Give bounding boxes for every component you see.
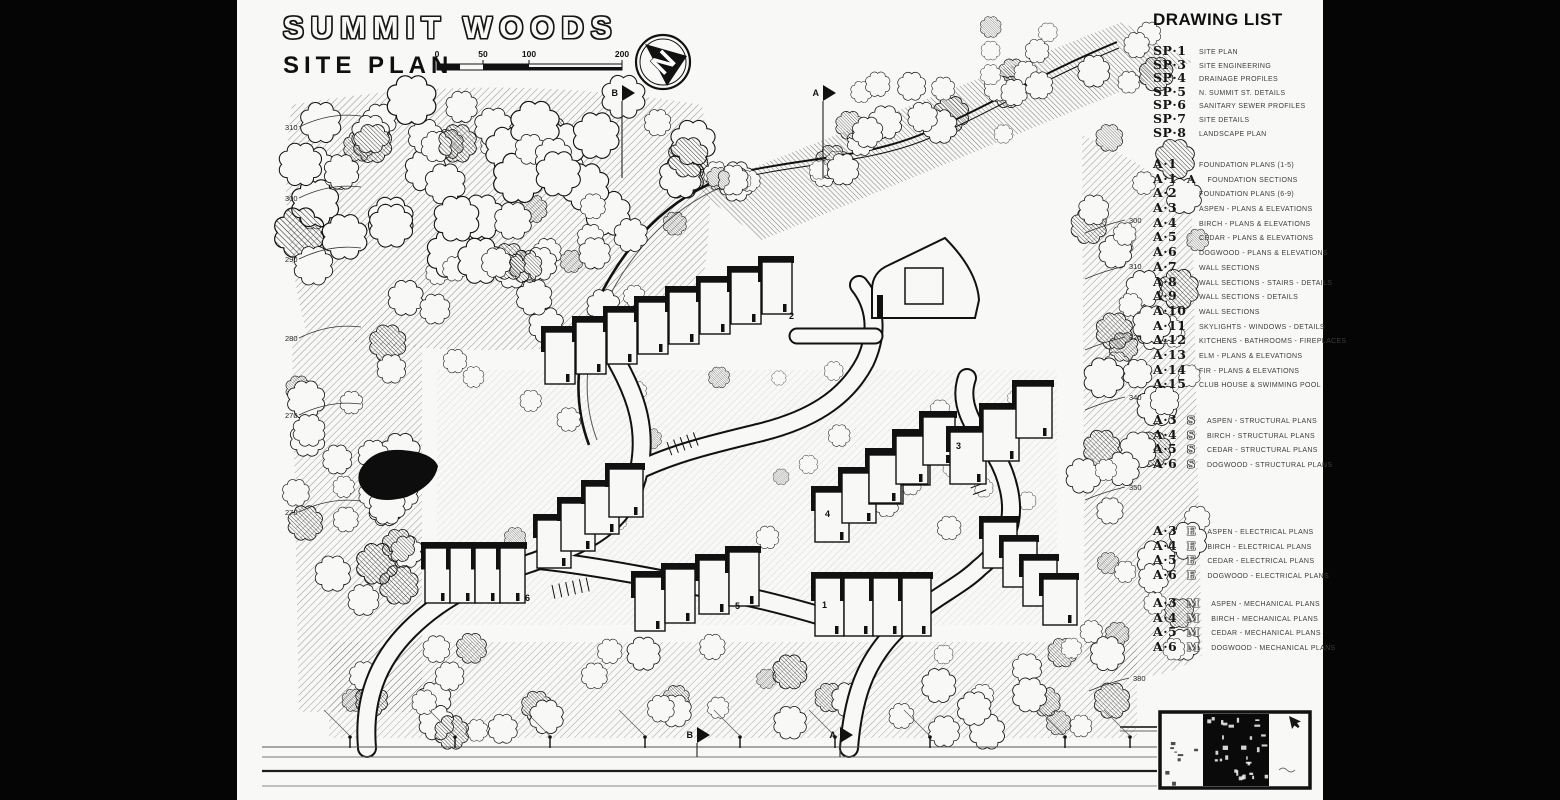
- marker-letter: A: [830, 730, 837, 740]
- building-unit: [902, 578, 931, 636]
- drawing-list-row: A·14FIR - PLANS & ELEVATIONS: [1153, 362, 1323, 377]
- right-letterbox: [1323, 0, 1560, 800]
- stamp-noise: [1225, 755, 1228, 759]
- unit-door: [441, 593, 445, 601]
- stamp-noise: [1222, 735, 1224, 739]
- unit-door: [1043, 428, 1047, 436]
- sheet-code-suffix: S: [1187, 429, 1195, 442]
- drawing-list-row: A·2FOUNDATION PLANS (6-9): [1153, 185, 1323, 200]
- sheet-code: A·4: [1153, 538, 1187, 553]
- sheet-code-suffix: M: [1187, 626, 1199, 639]
- marker-letter: A: [813, 88, 820, 98]
- sheet-code-suffix: M: [1187, 612, 1199, 625]
- sheet-title-text: KITCHENS - BATHROOMS - FIREPLACES: [1199, 338, 1347, 345]
- sheet-code: A·14: [1153, 362, 1187, 377]
- building-cluster: [695, 546, 761, 614]
- sheet-title-text: CLUB HOUSE & SWIMMING POOL: [1199, 382, 1321, 389]
- tree: [443, 349, 466, 372]
- sheet-title-text: SITE ENGINEERING: [1199, 63, 1271, 70]
- drawing-list-row: A·4BIRCH - PLANS & ELEVATIONS: [1153, 215, 1323, 230]
- stamp-noise: [1239, 776, 1242, 780]
- sheet-code: A·8: [1153, 274, 1187, 289]
- contour-value: 290: [285, 255, 298, 264]
- contour-value: 300: [1129, 216, 1142, 225]
- building-unit: [638, 302, 668, 354]
- marker-flag: [823, 85, 836, 101]
- sheet-title-text: WALL SECTIONS - DETAILS: [1199, 294, 1298, 301]
- sheet-code-suffix: M: [1187, 641, 1199, 654]
- unit-door: [466, 593, 470, 601]
- sheet-title-text: LANDSCAPE PLAN: [1199, 131, 1267, 138]
- unit-door: [566, 374, 570, 382]
- building-unit: [700, 282, 730, 334]
- drawing-list-row: A·6SDOGWOOD - STRUCTURAL PLANS: [1153, 456, 1323, 471]
- drawing-list-heading: DRAWING LIST: [1153, 10, 1323, 30]
- stamp-noise: [1223, 746, 1228, 750]
- building-cluster: [631, 563, 697, 631]
- stamp-noise: [1165, 771, 1169, 775]
- sheet-code: A·6: [1153, 456, 1187, 471]
- stamp-noise: [1170, 747, 1174, 749]
- building-unit: [1043, 579, 1077, 625]
- stamp-noise: [1172, 782, 1176, 786]
- sheet-title-text: FIR - PLANS & ELEVATIONS: [1199, 368, 1299, 375]
- sheet-code: A·12: [1153, 332, 1187, 347]
- stamp-noise: [1237, 718, 1239, 723]
- unit-door: [516, 593, 520, 601]
- unit-door: [977, 474, 981, 482]
- building-unit: [669, 292, 699, 344]
- sheet-title-text: SKYLIGHTS - WINDOWS - DETAILS: [1199, 324, 1325, 331]
- sheet-title-text: SITE DETAILS: [1199, 117, 1249, 124]
- sheet-title-text: FOUNDATION SECTIONS: [1208, 177, 1298, 184]
- sheet-code-suffix: E: [1187, 525, 1195, 538]
- sheet-code: A·3: [1153, 523, 1187, 538]
- sheet-title-text: BIRCH - ELECTRICAL PLANS: [1207, 544, 1311, 551]
- sheet-title-text: FOUNDATION PLANS (1-5): [1199, 162, 1294, 169]
- drawing-list-row: A·3ASPEN - PLANS & ELEVATIONS: [1153, 200, 1323, 215]
- sheet-code: A·13: [1153, 347, 1187, 362]
- sheet-title-text: BIRCH - PLANS & ELEVATIONS: [1199, 221, 1311, 228]
- contour-value: 310: [285, 123, 298, 132]
- stamp-noise: [1252, 776, 1254, 779]
- building-unit: [699, 560, 729, 614]
- unit-door: [634, 507, 638, 515]
- sheet-title-text: SITE PLAN: [1199, 49, 1238, 56]
- sheet-title-text: FOUNDATION PLANS (6-9): [1199, 191, 1294, 198]
- drawing-list-row: A·3EASPEN - ELECTRICAL PLANS: [1153, 523, 1323, 538]
- drawing-list-row: SP·4DRAINAGE PROFILES: [1153, 70, 1323, 84]
- sheet-title-text: N. SUMMIT ST. DETAILS: [1199, 90, 1285, 97]
- sheet-title-text: DOGWOOD - MECHANICAL PLANS: [1211, 645, 1335, 652]
- stamp-noise: [1246, 756, 1248, 759]
- sheet-code: A·3: [1153, 595, 1187, 610]
- contour-value: 270: [285, 411, 298, 420]
- contour-value: 280: [285, 334, 298, 343]
- sheet-code: A·4: [1153, 610, 1187, 625]
- unit-door: [562, 558, 566, 566]
- sheet-code: A·3: [1153, 412, 1187, 427]
- building-number: 3: [956, 441, 961, 451]
- title-block: SUMMIT WOODS SITE PLAN: [283, 10, 618, 80]
- stamp-noise: [1248, 762, 1251, 765]
- sheet-code: A·11: [1153, 318, 1187, 333]
- stamp-noise: [1249, 773, 1253, 775]
- stamp-noise: [1265, 775, 1268, 779]
- building-unit: [1016, 386, 1052, 438]
- unit-door: [864, 626, 868, 634]
- sheet-code: SP·8: [1153, 125, 1187, 140]
- drawing-list-row: A·5CEDAR - PLANS & ELEVATIONS: [1153, 229, 1323, 244]
- drawing-list-row: A·1AFOUNDATION SECTIONS: [1153, 171, 1323, 186]
- drawing-list-row: A·5ECEDAR - ELECTRICAL PLANS: [1153, 552, 1323, 567]
- tree: [980, 17, 1001, 38]
- sheet-code: A·1: [1153, 156, 1187, 171]
- sheet-title-text: DOGWOOD - ELECTRICAL PLANS: [1207, 573, 1329, 580]
- swimming-pool: [905, 268, 943, 304]
- drawing-list-row: A·4MBIRCH - MECHANICAL PLANS: [1153, 610, 1323, 625]
- drawing-list-row: A·3SASPEN - STRUCTURAL PLANS: [1153, 412, 1323, 427]
- unit-door: [840, 532, 844, 540]
- stamp-noise: [1212, 717, 1215, 720]
- sheet-code: A·5: [1153, 624, 1187, 639]
- unit-door: [919, 474, 923, 482]
- drawing-list-panel: DRAWING LIST SP·1SITE PLANSP·3SITE ENGIN…: [1153, 10, 1323, 30]
- building-number: 6: [525, 593, 530, 603]
- stamp-noise: [1257, 747, 1260, 752]
- sheet-title-text: CEDAR - PLANS & ELEVATIONS: [1199, 235, 1313, 242]
- stamp-noise: [1229, 725, 1234, 728]
- unit-door: [586, 541, 590, 549]
- contour-value: 350: [1129, 483, 1142, 492]
- unit-door: [720, 604, 724, 612]
- building-cluster: [421, 542, 527, 603]
- sheet-code: A·9: [1153, 288, 1187, 303]
- drawing-list-row: A·4SBIRCH - STRUCTURAL PLANS: [1153, 427, 1323, 442]
- stamp-noise: [1207, 719, 1211, 723]
- drawing-list-row: A·12KITCHENS - BATHROOMS - FIREPLACES: [1153, 332, 1323, 347]
- sheet-title-text: WALL SECTIONS: [1199, 265, 1260, 272]
- tree: [981, 41, 1000, 60]
- building-unit: [983, 409, 1019, 461]
- sheet-code: A·1: [1153, 171, 1187, 186]
- unit-door: [659, 344, 663, 352]
- drawing-list-row: SP·3SITE ENGINEERING: [1153, 57, 1323, 71]
- sheet-title-text: ELM - PLANS & ELEVATIONS: [1199, 353, 1302, 360]
- building-unit: [500, 548, 525, 603]
- stamp-noise: [1178, 754, 1183, 756]
- building-unit: [729, 552, 759, 606]
- drawing-list-row: A·8WALL SECTIONS - STAIRS - DETAILS: [1153, 274, 1323, 289]
- drawing-list-row: SP·5N. SUMMIT ST. DETAILS: [1153, 84, 1323, 98]
- sheet-code: A·5: [1153, 229, 1187, 244]
- drawing-list-group-mechanical: A·3MASPEN - MECHANICAL PLANSA·4MBIRCH - …: [1153, 595, 1323, 653]
- stamp-noise: [1171, 742, 1176, 745]
- drawing-list-row: A·10WALL SECTIONS: [1153, 303, 1323, 318]
- unit-door: [628, 354, 632, 362]
- sheet-title-text: ASPEN - STRUCTURAL PLANS: [1207, 418, 1317, 425]
- unit-door: [491, 593, 495, 601]
- unit-door: [867, 513, 871, 521]
- marker-letter: B: [612, 88, 619, 98]
- unit-door: [835, 626, 839, 634]
- drawing-list-row: A·6MDOGWOOD - MECHANICAL PLANS: [1153, 639, 1323, 654]
- drawing-paper: 123456 050100200NBABA3103002902802702703…: [237, 0, 1323, 800]
- stamp-noise: [1236, 770, 1238, 775]
- architect-stamp: [1160, 712, 1310, 788]
- drawing-list-group-sp: SP·1SITE PLANSP·3SITE ENGINEERINGSP·4DRA…: [1153, 43, 1323, 138]
- left-letterbox: [0, 0, 237, 800]
- contour-value: 380: [1133, 674, 1146, 683]
- sheet-code: A·15: [1153, 376, 1187, 391]
- sheet-title-text: CEDAR - ELECTRICAL PLANS: [1207, 558, 1314, 565]
- stamp-noise: [1254, 725, 1260, 727]
- stamp-noise: [1215, 759, 1218, 761]
- contour-value: 310: [1129, 262, 1142, 271]
- contour-value: 270: [285, 508, 298, 517]
- unit-door: [893, 626, 897, 634]
- contour-value: 320: [1129, 333, 1142, 342]
- unit-door: [1068, 615, 1072, 623]
- sheet-code: A·6: [1153, 244, 1187, 259]
- building-unit: [873, 578, 902, 636]
- sheet-code: A·5: [1153, 441, 1187, 456]
- sheet-title-text: ASPEN - ELECTRICAL PLANS: [1207, 529, 1313, 536]
- building-unit: [762, 262, 792, 314]
- unit-door: [783, 304, 787, 312]
- sheet-code-suffix: S: [1187, 458, 1195, 471]
- building-number: 2: [789, 311, 794, 321]
- drawing-list-group-arch: A·1FOUNDATION PLANS (1-5)A·1AFOUNDATION …: [1153, 156, 1323, 391]
- stamp-noise: [1220, 759, 1222, 762]
- unit-door: [946, 455, 950, 463]
- unit-door: [690, 334, 694, 342]
- drawing-list-row: A·3MASPEN - MECHANICAL PLANS: [1153, 595, 1323, 610]
- sheet-code-suffix: S: [1187, 414, 1195, 427]
- stamp-noise: [1261, 734, 1266, 736]
- unit-door: [610, 524, 614, 532]
- stamp-noise: [1174, 752, 1177, 753]
- building-unit: [635, 577, 665, 631]
- sheet-title-text: WALL SECTIONS: [1199, 309, 1260, 316]
- sheet-title-text: DOGWOOD - STRUCTURAL PLANS: [1207, 462, 1333, 469]
- drawing-list-row: A·15CLUB HOUSE & SWIMMING POOL: [1153, 376, 1323, 391]
- marker-letter: B: [687, 730, 694, 740]
- sheet-code-suffix: E: [1187, 569, 1195, 582]
- sheet-title-text: CEDAR - MECHANICAL PLANS: [1211, 630, 1321, 637]
- sheet-code-suffix: E: [1187, 554, 1195, 567]
- building-unit: [609, 469, 643, 517]
- drawing-list-row: SP·1SITE PLAN: [1153, 43, 1323, 57]
- stamp-noise: [1262, 744, 1268, 746]
- sheet-title-text: CEDAR - STRUCTURAL PLANS: [1207, 447, 1318, 454]
- building-unit: [545, 332, 575, 384]
- drawing-list-row: A·4EBIRCH - ELECTRICAL PLANS: [1153, 538, 1323, 553]
- drawing-list-row: A·1FOUNDATION PLANS (1-5): [1153, 156, 1323, 171]
- unit-door: [597, 364, 601, 372]
- stamp-noise: [1243, 775, 1246, 780]
- building-unit: [731, 272, 761, 324]
- sheet-code: A·4: [1153, 427, 1187, 442]
- drawing-list-row: A·9WALL SECTIONS - DETAILS: [1153, 288, 1323, 303]
- stamp-noise: [1255, 719, 1259, 721]
- building-unit: [950, 432, 986, 484]
- sheet-code: A·4: [1153, 215, 1187, 230]
- sheet-code: A·3: [1153, 200, 1187, 215]
- unit-door: [656, 621, 660, 629]
- drawing-list-row: A·7WALL SECTIONS: [1153, 259, 1323, 274]
- building-number: 1: [822, 600, 827, 610]
- stamp-noise: [1215, 751, 1218, 755]
- sheet-code-suffix: A: [1187, 173, 1196, 186]
- stamp-noise: [1178, 758, 1181, 761]
- drawing-list-row: A·5MCEDAR - MECHANICAL PLANS: [1153, 624, 1323, 639]
- building-number: 4: [825, 509, 830, 519]
- contour-value: 340: [1129, 393, 1142, 402]
- unit-door: [721, 324, 725, 332]
- contour-value: 300: [285, 194, 298, 203]
- sheet-code: A·5: [1153, 552, 1187, 567]
- unit-door: [1010, 451, 1014, 459]
- sheet-code-suffix: M: [1187, 597, 1199, 610]
- sheet-code: A·2: [1153, 185, 1187, 200]
- building-unit: [576, 322, 606, 374]
- sheet-title: SITE PLAN: [283, 52, 618, 80]
- sheet-code: A·6: [1153, 567, 1187, 582]
- drawing-list-row: SP·6SANITARY SEWER PROFILES: [1153, 97, 1323, 111]
- sheet-title-text: SANITARY SEWER PROFILES: [1199, 103, 1305, 110]
- building-unit: [607, 312, 637, 364]
- sheet-title-text: ASPEN - MECHANICAL PLANS: [1211, 601, 1320, 608]
- building-unit: [815, 578, 844, 636]
- building-unit: [844, 578, 873, 636]
- club-house-chimney: [877, 295, 883, 317]
- drawing-list-row: SP·7SITE DETAILS: [1153, 111, 1323, 125]
- sheet-code: A·10: [1153, 303, 1187, 318]
- building-number: 5: [735, 601, 740, 611]
- tree: [1038, 23, 1057, 42]
- sheet-title-text: DOGWOOD - PLANS & ELEVATIONS: [1199, 250, 1328, 257]
- stamp-noise: [1194, 749, 1198, 751]
- unit-door: [922, 626, 926, 634]
- drawing-list-row: A·6DOGWOOD - PLANS & ELEVATIONS: [1153, 244, 1323, 259]
- drawing-list-row: SP·8LANDSCAPE PLAN: [1153, 125, 1323, 139]
- north-arrow: N: [636, 35, 690, 89]
- unit-door: [686, 613, 690, 621]
- sheet-title-text: BIRCH - MECHANICAL PLANS: [1211, 616, 1318, 623]
- sheet-title-text: DRAINAGE PROFILES: [1199, 76, 1278, 83]
- stamp-noise: [1223, 723, 1228, 726]
- sheet-code-suffix: E: [1187, 540, 1195, 553]
- building-unit: [665, 569, 695, 623]
- building-cluster: [811, 572, 933, 636]
- sheet-title-text: WALL SECTIONS - STAIRS - DETAILS: [1199, 280, 1332, 287]
- drawing-list-row: A·5SCEDAR - STRUCTURAL PLANS: [1153, 441, 1323, 456]
- sheet-code-suffix: S: [1187, 443, 1195, 456]
- drawing-list-group-electrical: A·3EASPEN - ELECTRICAL PLANSA·4EBIRCH - …: [1153, 523, 1323, 581]
- drawing-list-row: A·6EDOGWOOD - ELECTRICAL PLANS: [1153, 567, 1323, 582]
- scanned-site-plan-sheet: 123456 050100200NBABA3103002902802702703…: [0, 0, 1560, 800]
- sheet-code: A·6: [1153, 639, 1187, 654]
- stamp-noise: [1250, 736, 1252, 740]
- sheet-title-text: BIRCH - STRUCTURAL PLANS: [1207, 433, 1315, 440]
- drawing-list-group-structural: A·3SASPEN - STRUCTURAL PLANSA·4SBIRCH - …: [1153, 412, 1323, 470]
- sheet-code: A·7: [1153, 259, 1187, 274]
- unit-door: [892, 493, 896, 501]
- unit-door: [750, 596, 754, 604]
- drawing-list-row: A·13ELM - PLANS & ELEVATIONS: [1153, 347, 1323, 362]
- tree: [898, 72, 926, 100]
- drawing-list-row: A·11SKYLIGHTS - WINDOWS - DETAILS: [1153, 318, 1323, 333]
- project-title: SUMMIT WOODS: [283, 10, 618, 46]
- stamp-noise: [1241, 746, 1246, 750]
- unit-door: [752, 314, 756, 322]
- club-house: [872, 238, 979, 318]
- sheet-title-text: ASPEN - PLANS & ELEVATIONS: [1199, 206, 1313, 213]
